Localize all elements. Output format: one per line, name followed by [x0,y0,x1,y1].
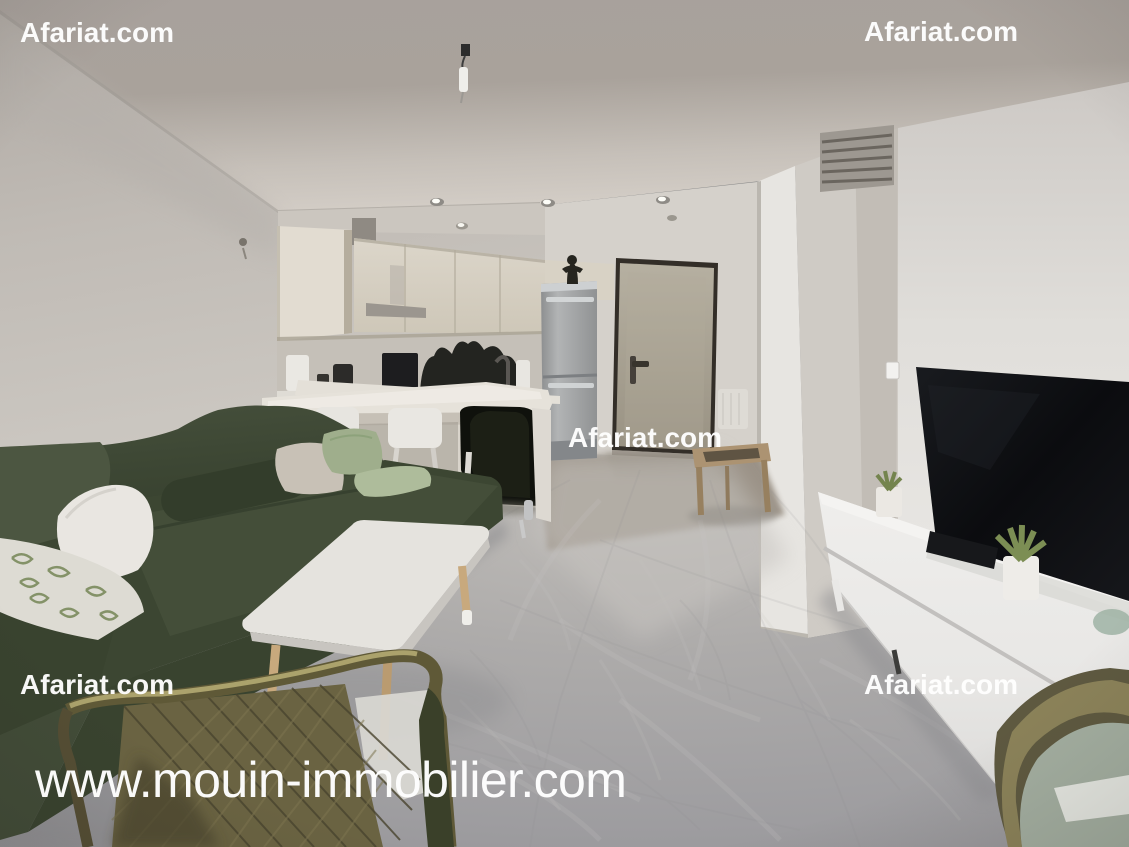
svg-text:Afariat.com: Afariat.com [20,669,174,700]
svg-text:Afariat.com: Afariat.com [864,16,1018,47]
svg-text:Afariat.com: Afariat.com [568,422,722,453]
svg-text:Afariat.com: Afariat.com [20,17,174,48]
svg-text:www.mouin-immobilier.com: www.mouin-immobilier.com [34,752,626,808]
svg-text:Afariat.com: Afariat.com [864,669,1018,700]
